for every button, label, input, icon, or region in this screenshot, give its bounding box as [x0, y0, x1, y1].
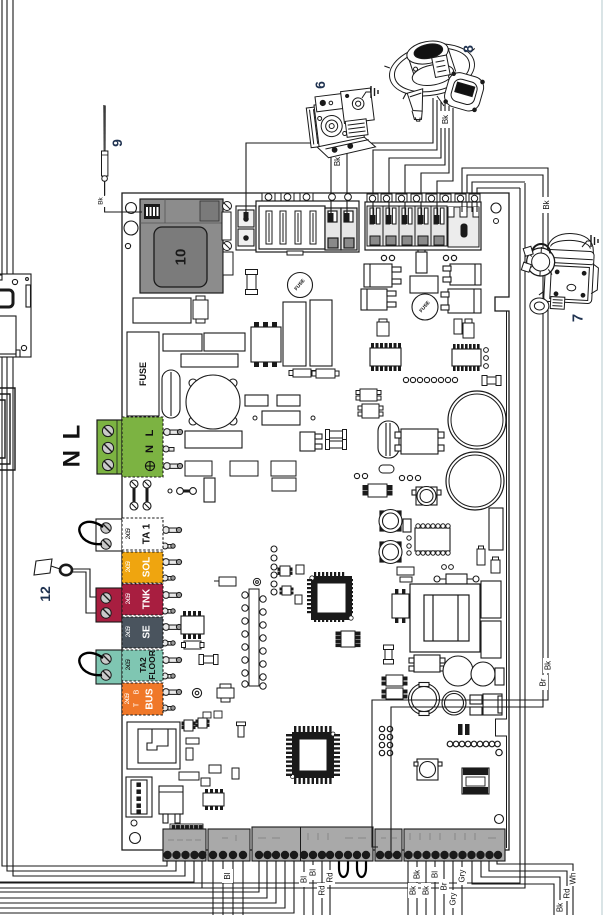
svg-text:TA 1: TA 1: [142, 523, 153, 544]
svg-text:Bk: Bk: [413, 869, 422, 879]
svg-text:9: 9: [109, 139, 125, 147]
svg-text:TNK: TNK: [142, 588, 153, 609]
svg-text:Bk: Bk: [441, 114, 450, 124]
svg-text:Rd: Rd: [318, 885, 327, 895]
svg-text:FUSE: FUSE: [138, 362, 148, 386]
svg-text:Bl: Bl: [300, 876, 309, 883]
svg-text:T: T: [134, 702, 141, 707]
svg-text:Bk: Bk: [556, 902, 565, 912]
svg-text:8: 8: [460, 45, 476, 53]
svg-text:2x0.5/: 2x0.5/: [125, 693, 131, 705]
svg-text:Bk: Bk: [544, 660, 553, 670]
svg-text:2x0.5/: 2x0.5/: [126, 561, 132, 573]
svg-text:Bl: Bl: [309, 869, 318, 876]
svg-text:Bl: Bl: [431, 871, 440, 878]
svg-text:Br: Br: [440, 882, 449, 890]
svg-text:L: L: [144, 429, 156, 436]
svg-text:Bk: Bk: [98, 196, 105, 204]
svg-text:Br: Br: [539, 678, 548, 686]
svg-text:Bk: Bk: [409, 885, 418, 895]
svg-text:10: 10: [173, 249, 190, 266]
svg-text:Rd: Rd: [563, 888, 572, 898]
svg-text:Gry: Gry: [449, 893, 458, 906]
svg-text:N: N: [144, 445, 156, 453]
svg-text:2x0.5/: 2x0.5/: [126, 528, 132, 540]
svg-text:Bk: Bk: [333, 156, 342, 166]
svg-text:BUS: BUS: [145, 688, 156, 709]
svg-text:Bk: Bk: [542, 199, 551, 209]
svg-text:B: B: [134, 689, 141, 694]
svg-text:Bl: Bl: [223, 872, 232, 879]
svg-text:SOL: SOL: [142, 557, 153, 578]
svg-text:2x0.5/: 2x0.5/: [126, 626, 132, 638]
svg-text:7: 7: [570, 314, 587, 322]
svg-text:2x0.5/: 2x0.5/: [126, 593, 132, 605]
svg-text:N L: N L: [59, 423, 86, 468]
svg-text:Bk: Bk: [422, 885, 431, 895]
svg-text:Rd: Rd: [326, 872, 335, 882]
svg-text:12: 12: [37, 586, 53, 602]
svg-text:Gry: Gry: [458, 870, 467, 883]
svg-text:2x0.5/: 2x0.5/: [126, 659, 132, 671]
svg-text:6: 6: [312, 81, 328, 89]
svg-text:SE: SE: [142, 625, 153, 639]
svg-text:FLOOR: FLOOR: [147, 650, 157, 680]
svg-text:Wh: Wh: [569, 873, 578, 885]
